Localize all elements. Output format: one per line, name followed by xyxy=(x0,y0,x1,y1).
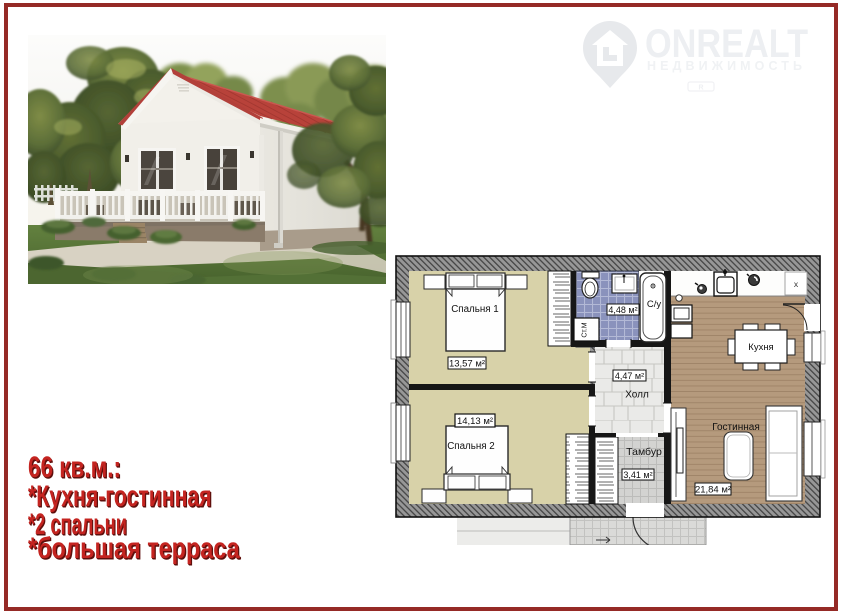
svg-text:Кухня: Кухня xyxy=(748,342,773,353)
svg-text:4,47 м²: 4,47 м² xyxy=(615,371,644,381)
svg-text:Спальня 1: Спальня 1 xyxy=(451,304,499,315)
svg-text:Ст.М: Ст.М xyxy=(582,322,589,337)
svg-text:Гостинная: Гостинная xyxy=(712,422,760,433)
svg-text:Холл: Холл xyxy=(625,390,649,401)
svg-text:Спальня 2: Спальня 2 xyxy=(447,441,495,452)
svg-text:13,57 м²: 13,57 м² xyxy=(449,359,485,370)
svg-text:14,13 м²: 14,13 м² xyxy=(457,416,493,427)
svg-text:С/у: С/у xyxy=(647,299,662,310)
svg-text:3,41 м²: 3,41 м² xyxy=(623,470,652,480)
svg-text:21,84 м²: 21,84 м² xyxy=(695,485,731,496)
svg-text:4,48 м²: 4,48 м² xyxy=(608,305,637,315)
svg-text:R: R xyxy=(698,85,703,92)
svg-text:Тамбур: Тамбур xyxy=(626,446,662,458)
